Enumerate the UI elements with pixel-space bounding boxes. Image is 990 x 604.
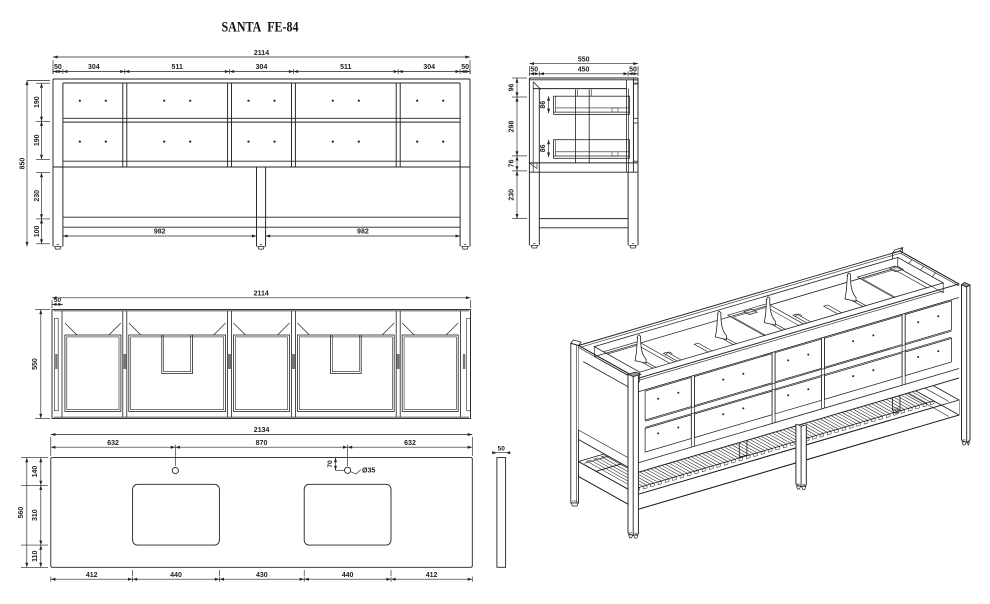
svg-text:304: 304 xyxy=(88,64,100,71)
svg-text:50: 50 xyxy=(498,445,506,452)
svg-text:230: 230 xyxy=(509,189,516,201)
svg-text:850: 850 xyxy=(20,158,27,170)
svg-text:110: 110 xyxy=(32,550,39,561)
svg-text:100: 100 xyxy=(34,225,41,237)
svg-text:982: 982 xyxy=(357,229,369,236)
svg-text:2114: 2114 xyxy=(254,50,269,57)
svg-text:870: 870 xyxy=(256,440,268,447)
svg-text:190: 190 xyxy=(34,134,41,146)
svg-text:96: 96 xyxy=(509,84,516,92)
svg-text:430: 430 xyxy=(256,572,268,579)
svg-text:86: 86 xyxy=(540,101,547,109)
svg-text:310: 310 xyxy=(32,509,39,521)
svg-text:50: 50 xyxy=(461,64,469,71)
svg-text:50: 50 xyxy=(530,66,538,73)
svg-text:560: 560 xyxy=(18,507,25,519)
svg-text:Ø35: Ø35 xyxy=(362,467,375,474)
svg-text:632: 632 xyxy=(107,440,119,447)
svg-text:304: 304 xyxy=(256,64,268,71)
svg-text:76: 76 xyxy=(509,159,516,167)
svg-text:550: 550 xyxy=(578,56,590,63)
svg-text:2134: 2134 xyxy=(254,427,270,434)
svg-text:632: 632 xyxy=(404,440,416,447)
svg-text:511: 511 xyxy=(172,64,183,71)
svg-text:140: 140 xyxy=(32,466,39,478)
svg-text:412: 412 xyxy=(426,572,438,579)
svg-text:50: 50 xyxy=(629,66,637,73)
svg-text:982: 982 xyxy=(154,229,166,236)
svg-text:230: 230 xyxy=(34,190,41,202)
svg-text:412: 412 xyxy=(86,572,98,579)
svg-text:440: 440 xyxy=(342,572,354,579)
svg-text:70: 70 xyxy=(327,460,334,468)
svg-text:50: 50 xyxy=(54,64,62,71)
svg-text:511: 511 xyxy=(340,64,351,71)
svg-text:SANTA FE-84: SANTA FE-84 xyxy=(222,20,299,36)
svg-text:550: 550 xyxy=(32,358,39,370)
svg-text:298: 298 xyxy=(509,121,516,133)
svg-text:86: 86 xyxy=(540,144,547,152)
svg-text:190: 190 xyxy=(34,96,41,108)
svg-text:2114: 2114 xyxy=(254,290,269,297)
svg-text:304: 304 xyxy=(423,64,435,71)
svg-text:440: 440 xyxy=(170,572,182,579)
svg-text:450: 450 xyxy=(578,66,590,73)
